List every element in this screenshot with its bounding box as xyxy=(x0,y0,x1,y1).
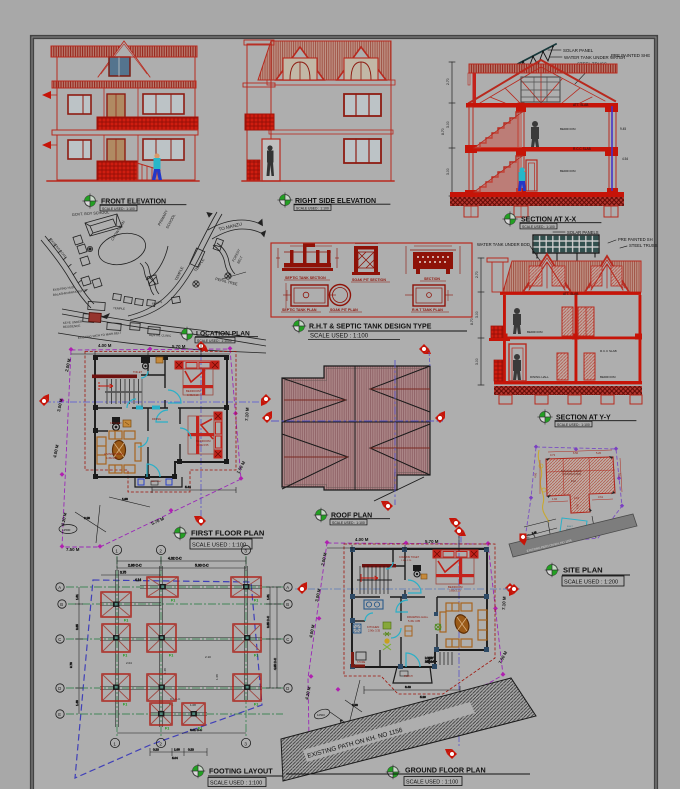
svg-text:F1: F1 xyxy=(123,702,127,706)
svg-text:LOBBY: LOBBY xyxy=(425,656,434,660)
svg-text:9.78: 9.78 xyxy=(69,662,73,668)
svg-text:GROUND FLOOR PLAN: GROUND FLOOR PLAN xyxy=(405,766,486,775)
svg-text:B: B xyxy=(286,602,289,607)
svg-text:DENTAL CLINIC: DENTAL CLINIC xyxy=(149,333,172,338)
svg-text:3: 3 xyxy=(244,548,247,553)
svg-text:2.70: 2.70 xyxy=(446,78,450,85)
svg-text:F1: F1 xyxy=(165,726,169,730)
svg-text:3.18: 3.18 xyxy=(84,516,90,520)
svg-text:F1: F1 xyxy=(123,653,127,657)
svg-text:SITE PLAN: SITE PLAN xyxy=(563,566,603,575)
svg-text:8.10: 8.10 xyxy=(571,480,576,483)
svg-text:1.81: 1.81 xyxy=(75,594,79,600)
svg-text:PORCH: PORCH xyxy=(404,675,413,678)
svg-text:WATER TANK UNDER BOD: WATER TANK UNDER BOD xyxy=(477,242,530,247)
svg-text:5.70 M: 5.70 M xyxy=(172,344,186,349)
svg-text:STORE: STORE xyxy=(357,661,366,664)
svg-text:4.14: 4.14 xyxy=(135,578,141,582)
svg-text:STEEL TRUSS: STEEL TRUSS xyxy=(629,243,658,248)
svg-text:4.00 M: 4.00 M xyxy=(355,537,369,542)
svg-text:3.00: 3.00 xyxy=(475,311,479,318)
svg-text:E: E xyxy=(58,712,61,717)
svg-text:TOILET: TOILET xyxy=(133,370,142,374)
svg-text:1.48: 1.48 xyxy=(75,700,79,706)
svg-text:R.H.T & SEPTIC TANK DESIGN TY: R.H.T & SEPTIC TANK DESIGN TYPE xyxy=(309,324,432,331)
svg-text:4.95 C-C: 4.95 C-C xyxy=(273,657,277,670)
svg-text:FIRST FLOOR PLAN: FIRST FLOOR PLAN xyxy=(191,529,264,538)
svg-text:R.C.C SLAB: R.C.C SLAB xyxy=(600,349,617,353)
svg-text:F1: F1 xyxy=(171,598,175,602)
svg-text:D: D xyxy=(58,686,61,691)
svg-text:7.10 M: 7.10 M xyxy=(244,407,250,421)
svg-text:CONSTRUCTION: CONSTRUCTION xyxy=(562,473,582,476)
svg-text:C: C xyxy=(58,637,61,642)
svg-text:SCALE USED : 1:1000: SCALE USED : 1:1000 xyxy=(197,339,232,343)
svg-text:1: 1 xyxy=(113,741,116,746)
svg-text:2.00: 2.00 xyxy=(575,503,579,509)
svg-text:SCALE USED : 1:100: SCALE USED : 1:100 xyxy=(522,225,555,229)
svg-text:5.44: 5.44 xyxy=(185,485,191,489)
svg-text:A: A xyxy=(286,585,289,590)
svg-text:BEDROOM: BEDROOM xyxy=(527,330,543,334)
svg-text:2.04: 2.04 xyxy=(126,661,132,665)
svg-text:BEDROOM: BEDROOM xyxy=(186,389,201,393)
svg-text:PRE PAINTED SHE: PRE PAINTED SHE xyxy=(611,53,650,58)
svg-text:8.70: 8.70 xyxy=(441,128,445,135)
svg-text:DINING: DINING xyxy=(152,417,161,421)
svg-text:3.00: 3.00 xyxy=(475,358,479,365)
svg-text:3.35x3.55: 3.35x3.55 xyxy=(197,443,209,447)
svg-text:4.54: 4.54 xyxy=(622,157,628,161)
svg-text:BEDROOM: BEDROOM xyxy=(448,585,463,589)
svg-text:12500: 12500 xyxy=(62,528,71,532)
svg-text:COMMON TOILET: COMMON TOILET xyxy=(399,556,420,559)
svg-text:F1: F1 xyxy=(254,702,258,706)
svg-text:0.23: 0.23 xyxy=(188,748,194,752)
svg-text:R.H.T TANK PLAN: R.H.T TANK PLAN xyxy=(412,308,443,312)
svg-text:DRAWING HALL: DRAWING HALL xyxy=(407,615,429,619)
svg-text:C: C xyxy=(286,637,289,642)
svg-text:8.43: 8.43 xyxy=(405,685,411,689)
svg-text:9.45: 9.45 xyxy=(620,127,626,131)
svg-text:2.97x1.95: 2.97x1.95 xyxy=(425,661,436,664)
svg-text:3.65 C-C: 3.65 C-C xyxy=(266,615,270,628)
svg-text:BEDROOM: BEDROOM xyxy=(600,375,616,379)
svg-text:5.45x 3.85: 5.45x 3.85 xyxy=(408,619,421,623)
svg-text:1.66: 1.66 xyxy=(552,497,558,501)
svg-text:3.65: 3.65 xyxy=(75,624,79,630)
svg-text:SOLAR PANELS: SOLAR PANELS xyxy=(567,230,599,235)
svg-text:2.16: 2.16 xyxy=(574,496,580,500)
svg-text:DINING HALL: DINING HALL xyxy=(530,375,549,379)
svg-text:0.23: 0.23 xyxy=(153,748,159,752)
svg-text:BALCONY: BALCONY xyxy=(151,480,162,483)
svg-text:SCALE USED : 1:100: SCALE USED : 1:100 xyxy=(557,423,590,427)
svg-text:1.98: 1.98 xyxy=(122,497,128,501)
svg-text:F1: F1 xyxy=(169,653,173,657)
svg-text:2.70: 2.70 xyxy=(475,271,479,278)
svg-text:8.70: 8.70 xyxy=(470,318,474,325)
svg-text:PRE PAINTED SH: PRE PAINTED SH xyxy=(618,237,653,242)
svg-text:1.90x 2.20: 1.90x 2.20 xyxy=(401,560,412,562)
svg-text:KITCHEN: KITCHEN xyxy=(367,625,379,629)
svg-text:SCALE USED : 1:100: SCALE USED : 1:100 xyxy=(310,334,369,340)
svg-text:SEPTIC TANK PLAN: SEPTIC TANK PLAN xyxy=(282,308,317,312)
svg-text:3.75: 3.75 xyxy=(120,571,126,575)
svg-text:5.04: 5.04 xyxy=(172,756,178,760)
svg-text:SOLAR PANEL: SOLAR PANEL xyxy=(563,48,594,53)
svg-text:SCALE USED : 1:100: SCALE USED : 1:100 xyxy=(192,543,246,549)
svg-text:2: 2 xyxy=(159,548,162,553)
svg-text:4.45x3.85: 4.45x3.85 xyxy=(106,456,118,460)
svg-text:SECTION: SECTION xyxy=(424,277,440,281)
svg-text:3.45x3.10: 3.45x3.10 xyxy=(187,393,199,397)
svg-text:SCALE USED : 1:200: SCALE USED : 1:200 xyxy=(564,580,618,586)
svg-text:TEMPLE: TEMPLE xyxy=(113,306,125,311)
svg-text:1.81: 1.81 xyxy=(266,594,270,600)
svg-text:B: B xyxy=(60,602,63,607)
svg-text:SCALE USED : 1:100: SCALE USED : 1:100 xyxy=(296,206,329,210)
svg-text:BEDROOM: BEDROOM xyxy=(560,127,576,131)
svg-text:2.90x 3.35: 2.90x 3.35 xyxy=(368,629,381,633)
svg-text:R.H.T: R.H.T xyxy=(567,526,573,528)
svg-text:7.10 M: 7.10 M xyxy=(501,596,507,610)
svg-text:A: A xyxy=(58,585,61,590)
svg-text:FOOTING LAYOUT: FOOTING LAYOUT xyxy=(209,767,273,776)
svg-text:3.00: 3.00 xyxy=(446,168,450,175)
svg-text:1: 1 xyxy=(115,548,118,553)
svg-text:1.68: 1.68 xyxy=(174,748,180,752)
svg-text:KITCHEN: KITCHEN xyxy=(110,421,122,425)
svg-text:4.00 M: 4.00 M xyxy=(98,343,112,348)
svg-text:BEDROOM: BEDROOM xyxy=(560,169,576,173)
svg-text:6.50: 6.50 xyxy=(573,451,579,455)
svg-text:SCALE USED : 1:100: SCALE USED : 1:100 xyxy=(210,780,262,786)
svg-text:1.98: 1.98 xyxy=(352,703,358,707)
svg-text:F1: F1 xyxy=(124,618,128,622)
svg-text:3.61: 3.61 xyxy=(598,495,604,499)
svg-text:2.86 C-C: 2.86 C-C xyxy=(128,564,142,568)
svg-text:F1: F1 xyxy=(254,653,258,657)
svg-text:4.32 C-C: 4.32 C-C xyxy=(168,557,182,561)
svg-text:3.00: 3.00 xyxy=(446,121,450,128)
svg-text:BEDROOM: BEDROOM xyxy=(196,439,211,443)
svg-text:SEPTIC TANK SECTION: SEPTIC TANK SECTION xyxy=(285,276,326,280)
svg-text:7.50 M: 7.50 M xyxy=(66,547,80,552)
svg-text:R.C.C SLAB: R.C.C SLAB xyxy=(573,147,591,151)
svg-text:2: 2 xyxy=(159,741,162,746)
svg-text:D: D xyxy=(286,686,289,691)
svg-text:12500: 12500 xyxy=(317,713,325,717)
svg-text:5.20: 5.20 xyxy=(596,451,602,455)
svg-text:F1: F1 xyxy=(198,726,202,730)
svg-text:3: 3 xyxy=(244,741,247,746)
svg-text:5.39: 5.39 xyxy=(420,695,426,699)
svg-text:1.48: 1.48 xyxy=(163,668,167,674)
svg-text:2.10: 2.10 xyxy=(205,655,211,659)
svg-text:7.10: 7.10 xyxy=(617,472,621,478)
svg-text:SCALE USED : 1:100: SCALE USED : 1:100 xyxy=(406,779,458,785)
svg-text:4.60: 4.60 xyxy=(533,472,537,478)
svg-text:5.30 C-C: 5.30 C-C xyxy=(195,564,209,568)
svg-text:ATT. SLAB: ATT. SLAB xyxy=(573,103,588,107)
svg-text:F1: F1 xyxy=(254,598,258,602)
svg-text:1.68: 1.68 xyxy=(215,674,219,680)
svg-text:SOAK PIT SECTION: SOAK PIT SECTION xyxy=(352,278,386,282)
svg-text:0.73: 0.73 xyxy=(550,453,556,457)
svg-text:5.70 M: 5.70 M xyxy=(425,539,439,544)
svg-text:SOAK PIT PLAN: SOAK PIT PLAN xyxy=(330,308,358,312)
svg-text:3.85x3.10: 3.85x3.10 xyxy=(449,589,461,593)
svg-text:SCALE USED : 1:100: SCALE USED : 1:100 xyxy=(332,521,365,525)
svg-text:LIVING ROOM: LIVING ROOM xyxy=(104,452,123,456)
